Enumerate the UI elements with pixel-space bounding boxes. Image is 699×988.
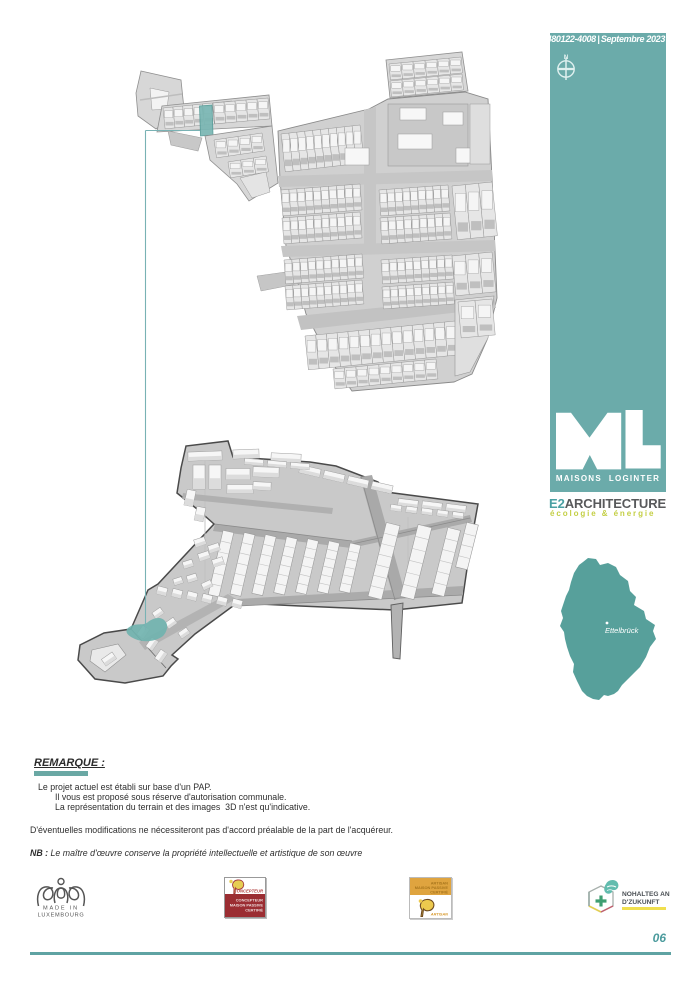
svg-text:CERTIFIÉ: CERTIFIÉ [245, 908, 263, 913]
svg-text:D'ZUKUNFT: D'ZUKUNFT [622, 899, 659, 906]
svg-text:LUXEMBOURG: LUXEMBOURG [38, 913, 85, 919]
svg-text:CERTIFIÉ: CERTIFIÉ [430, 890, 448, 895]
svg-text:Ettelbrück: Ettelbrück [605, 626, 640, 635]
svg-text:CONCEPTEUR: CONCEPTEUR [234, 889, 263, 894]
svg-text:NOHALTEG AN: NOHALTEG AN [622, 891, 670, 898]
svg-text:MADE IN: MADE IN [43, 906, 79, 912]
svg-text:ARTISAN: ARTISAN [430, 912, 448, 917]
